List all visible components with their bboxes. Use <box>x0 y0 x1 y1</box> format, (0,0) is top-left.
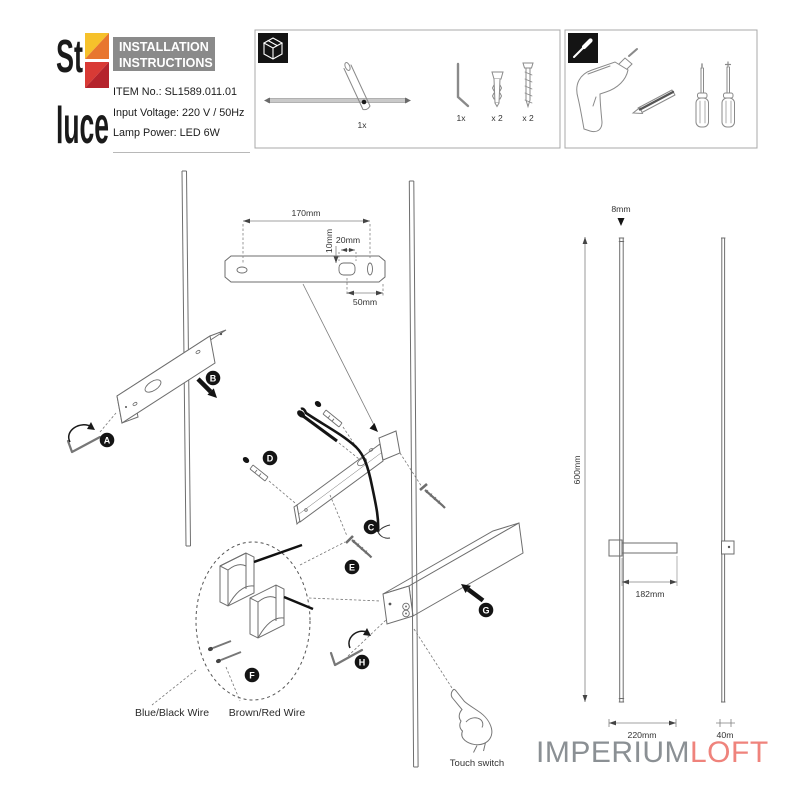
dim-8-label: 8mm <box>611 204 630 214</box>
step-label-d: D <box>263 451 278 466</box>
step-label-c: C <box>364 520 379 535</box>
dim-182 <box>622 556 677 586</box>
hand-icon <box>451 689 492 752</box>
lamp-power: Lamp Power: LED 6W <box>113 127 220 139</box>
dim-40 <box>716 719 735 727</box>
stluce-logo-icon: St luce <box>55 32 113 148</box>
item-number: ITEM No.: SL1589.011.01 <box>113 86 237 98</box>
svg-text:C: C <box>368 522 375 532</box>
wire-pins <box>207 641 241 664</box>
package-icon <box>258 33 288 63</box>
anchor-qty-label: x 2 <box>491 113 503 123</box>
svg-text:D: D <box>267 453 274 463</box>
svg-text:B: B <box>210 373 217 383</box>
lamp-drawing <box>264 62 411 110</box>
touch-switch-label: Touch switch <box>450 758 504 769</box>
center-assembly: D C E <box>242 400 445 575</box>
step-label-h: H <box>355 655 370 670</box>
parts-box: 1x 1x x 2 x 2 <box>255 30 560 148</box>
watermark: IMPERIUMLOFT <box>536 736 769 770</box>
step-label-e: E <box>345 560 360 575</box>
lamp-qty-label: 1x <box>358 120 368 130</box>
wall-screw-right <box>400 453 445 508</box>
allen-key-a <box>68 422 100 452</box>
dim-600-label: 600mm <box>572 456 582 485</box>
brown-red-wire-label: Brown/Red Wire <box>229 707 306 719</box>
watermark-imperium: IMPERIUM <box>536 736 690 769</box>
svg-text:F: F <box>249 670 255 680</box>
step-label-f: F <box>245 668 260 683</box>
svg-text:E: E <box>349 562 355 572</box>
instruction-sheet: 1x 1x x 2 x 2 <box>0 0 800 800</box>
dim-10-label: 10mm <box>324 229 334 253</box>
title-line-1: INSTALLATION <box>119 39 215 55</box>
screw-qty-label: x 2 <box>522 113 534 123</box>
bracket-3d <box>294 431 400 524</box>
pencil-icon <box>633 90 675 114</box>
dim-220 <box>609 719 676 727</box>
step-label-b: B <box>206 371 221 386</box>
bracket-top-view: 170mm 10mm 20mm 50mm <box>225 208 385 432</box>
logo-st: St <box>56 32 83 82</box>
svg-text:H: H <box>359 657 366 667</box>
dimension-views: 8mm 600mm 182mm <box>572 204 735 740</box>
mount-bolt <box>296 409 359 459</box>
wiring-detail: F Blue/Black Wire Brown/Red Wire <box>135 542 381 719</box>
screw-icon <box>523 63 533 107</box>
side-view <box>721 238 734 702</box>
svg-text:G: G <box>482 605 489 615</box>
diagram-canvas: 1x 1x x 2 x 2 <box>0 0 800 800</box>
flat-screwdriver-icon <box>696 64 709 127</box>
tool-icon <box>568 33 598 63</box>
title-banner: INSTALLATION INSTRUCTIONS <box>113 37 215 71</box>
wall-rod-middle <box>409 181 418 767</box>
dim-50-label: 50mm <box>353 297 377 307</box>
lamp-body-g <box>383 523 523 624</box>
dim-170-label: 170mm <box>292 208 321 218</box>
svg-text:A: A <box>104 435 111 445</box>
wall-anchor-icon <box>492 72 503 107</box>
brand-logo: St luce <box>55 32 113 148</box>
phillips-screwdriver-icon <box>722 62 735 127</box>
watermark-loft: LOFT <box>690 736 769 769</box>
arrow-g <box>461 584 483 601</box>
left-assembly: A B <box>68 171 226 546</box>
input-voltage: Input Voltage: 220 V / 50Hz <box>113 107 244 119</box>
logo-luce: luce <box>56 97 109 148</box>
lamp-g-assembly: G H <box>331 523 523 669</box>
connector-block-2 <box>250 585 284 638</box>
dim-600 <box>583 237 588 702</box>
connector-block-1 <box>220 553 254 606</box>
step-label-g: G <box>479 603 494 618</box>
dim-182-label: 182mm <box>636 589 665 599</box>
dim-20-label: 20mm <box>336 235 360 245</box>
front-view <box>609 238 677 702</box>
allen-key-qty-label: 1x <box>457 113 467 123</box>
touch-hand: Touch switch <box>414 629 504 769</box>
title-line-2: INSTRUCTIONS <box>119 55 215 71</box>
blue-black-wire-label: Blue/Black Wire <box>135 707 209 719</box>
step-label-a: A <box>100 433 115 448</box>
header-divider <box>113 152 250 153</box>
tools-box <box>565 30 757 148</box>
allen-key-icon <box>458 64 468 106</box>
